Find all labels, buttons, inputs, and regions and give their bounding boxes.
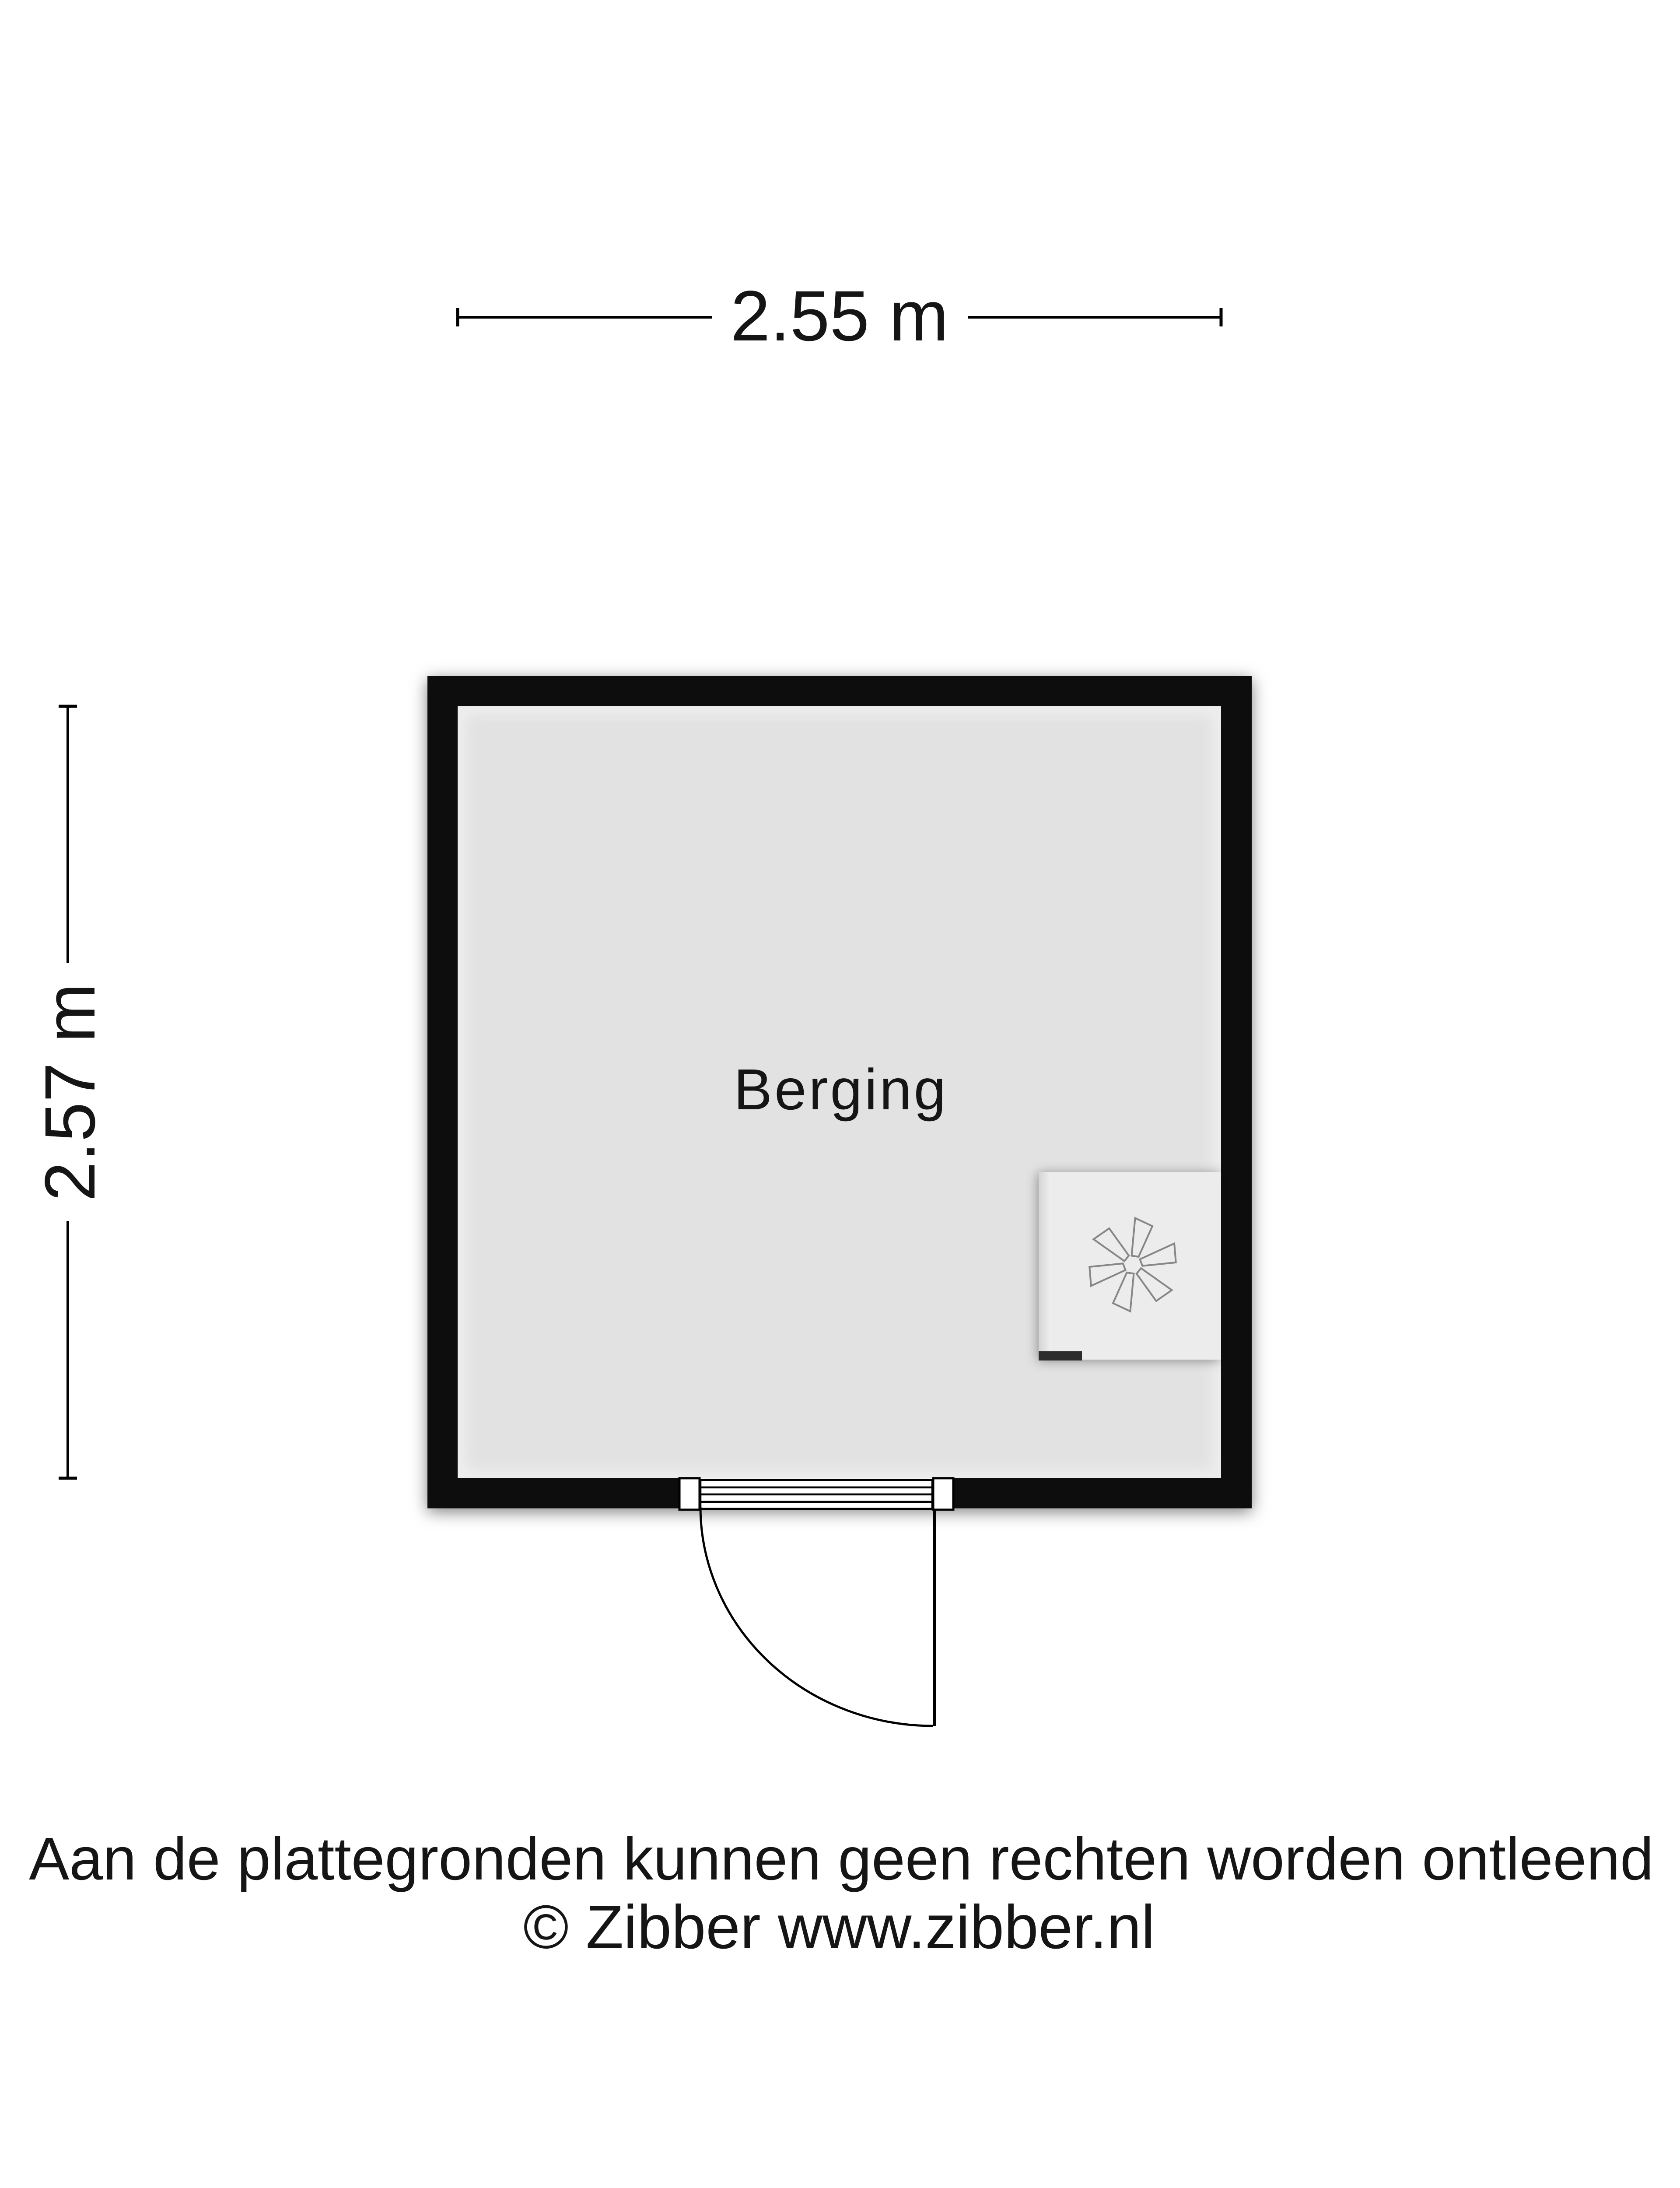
svg-text:Berging: Berging <box>734 1057 948 1122</box>
svg-text:© Zibber www.zibber.nl: © Zibber www.zibber.nl <box>523 1892 1155 1961</box>
svg-text:Aan de plattegronden kunnen ge: Aan de plattegronden kunnen geen rechten… <box>29 1825 1654 1893</box>
svg-text:2.57 m: 2.57 m <box>30 983 110 1201</box>
svg-text:2.55 m: 2.55 m <box>731 276 948 356</box>
